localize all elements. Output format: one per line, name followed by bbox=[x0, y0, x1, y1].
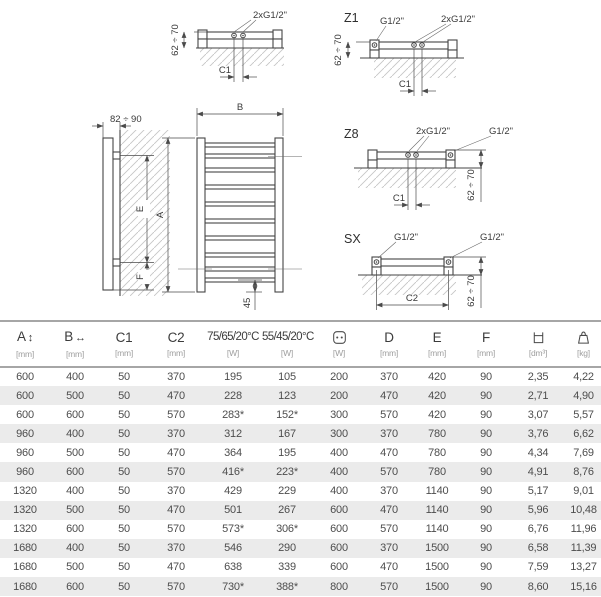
cell: 3,07 bbox=[510, 405, 566, 424]
cell: 50 bbox=[100, 539, 148, 558]
width-dim: B bbox=[237, 102, 243, 113]
cell: 600 bbox=[50, 577, 100, 596]
connection-label: G1/2" bbox=[489, 126, 513, 137]
cell: 470 bbox=[148, 386, 204, 405]
cell: 4,34 bbox=[510, 443, 566, 462]
cell: 200 bbox=[312, 386, 366, 405]
cell: 780 bbox=[412, 443, 462, 462]
c1-dim: C1 bbox=[393, 193, 405, 204]
cell: 50 bbox=[100, 558, 148, 577]
cell: 400 bbox=[50, 367, 100, 386]
cell: 200 bbox=[312, 367, 366, 386]
power-socket-icon bbox=[332, 330, 347, 345]
weight-icon bbox=[576, 330, 591, 345]
cell: 364 bbox=[204, 443, 262, 462]
connection-label: 2xG1/2" bbox=[441, 14, 475, 25]
cell: 152* bbox=[262, 405, 312, 424]
cell: 370 bbox=[366, 539, 412, 558]
header-row: A↕ [mm] B↔ [mm] C1 [mm] C2 [mm] 75/65/20… bbox=[0, 321, 601, 367]
cell: 4,22 bbox=[566, 367, 601, 386]
depth-dim: 82 ÷ 90 bbox=[110, 114, 142, 125]
cell: 600 bbox=[0, 386, 50, 405]
cell: 730* bbox=[204, 577, 262, 596]
cell: 546 bbox=[204, 539, 262, 558]
cell: 470 bbox=[366, 558, 412, 577]
top-view-sx-drawing: SX G1/2" G1/2" C2 62 ÷ 70 bbox=[296, 226, 556, 326]
table-row: 96060050570416*223*400570780904,918,76 bbox=[0, 462, 601, 481]
cell: 4,91 bbox=[510, 462, 566, 481]
cell: 50 bbox=[100, 386, 148, 405]
cell: 5,57 bbox=[566, 405, 601, 424]
cell: 600 bbox=[312, 539, 366, 558]
cell: 13,27 bbox=[566, 558, 601, 577]
cell: 500 bbox=[50, 443, 100, 462]
cell: 50 bbox=[100, 482, 148, 501]
cell: 90 bbox=[462, 539, 510, 558]
connection-label: G1/2" bbox=[380, 16, 404, 27]
cell: 600 bbox=[50, 405, 100, 424]
cell: 90 bbox=[462, 520, 510, 539]
cell: 123 bbox=[262, 386, 312, 405]
cell: 501 bbox=[204, 501, 262, 520]
cell: 470 bbox=[366, 443, 412, 462]
cell: 370 bbox=[366, 482, 412, 501]
cell: 2,35 bbox=[510, 367, 566, 386]
cell: 400 bbox=[50, 482, 100, 501]
cell: 2,71 bbox=[510, 386, 566, 405]
cell: 7,59 bbox=[510, 558, 566, 577]
cell: 6,62 bbox=[566, 424, 601, 443]
c1-dim: C1 bbox=[399, 79, 411, 90]
cell: 223* bbox=[262, 462, 312, 481]
cell: 90 bbox=[462, 482, 510, 501]
cell: 500 bbox=[50, 501, 100, 520]
cell: 195 bbox=[262, 443, 312, 462]
top-view-z8-drawing: Z8 2xG1/2" G1/2" 62 ÷ 70 C1 bbox=[296, 122, 556, 226]
cell: 570 bbox=[148, 577, 204, 596]
cell: 400 bbox=[312, 443, 366, 462]
cell: 50 bbox=[100, 462, 148, 481]
cell: 960 bbox=[0, 424, 50, 443]
cell: 1140 bbox=[412, 501, 462, 520]
cell: 638 bbox=[204, 558, 262, 577]
cell: 50 bbox=[100, 520, 148, 539]
cell: 90 bbox=[462, 501, 510, 520]
cell: 90 bbox=[462, 405, 510, 424]
wall-distance-dim: 62 ÷ 70 bbox=[466, 275, 477, 307]
cell: 11,96 bbox=[566, 520, 601, 539]
cell: 7,69 bbox=[566, 443, 601, 462]
cell: 400 bbox=[50, 424, 100, 443]
cell: 570 bbox=[366, 405, 412, 424]
cell: 306* bbox=[262, 520, 312, 539]
cell: 780 bbox=[412, 462, 462, 481]
water-volume-icon bbox=[531, 330, 546, 345]
height-dim: A bbox=[155, 211, 166, 218]
table-row: 60060050570283*152*300570420903,075,57 bbox=[0, 405, 601, 424]
col-header-volume: [dm³] bbox=[510, 321, 566, 367]
table-row: 132060050570573*306*6005701140906,7611,9… bbox=[0, 520, 601, 539]
cell: 300 bbox=[312, 424, 366, 443]
cell: 570 bbox=[148, 405, 204, 424]
cell: 429 bbox=[204, 482, 262, 501]
cell: 50 bbox=[100, 424, 148, 443]
cell: 1320 bbox=[0, 482, 50, 501]
table-row: 1680400503705462906003701500906,5811,39 bbox=[0, 539, 601, 558]
cell: 420 bbox=[412, 386, 462, 405]
cell: 229 bbox=[262, 482, 312, 501]
cell: 6,58 bbox=[510, 539, 566, 558]
table-row: 60050050470228123200470420902,714,90 bbox=[0, 386, 601, 405]
cell: 90 bbox=[462, 443, 510, 462]
variant-label-z8: Z8 bbox=[344, 127, 359, 141]
cell: 1140 bbox=[412, 520, 462, 539]
cell: 6,76 bbox=[510, 520, 566, 539]
cell: 570 bbox=[366, 520, 412, 539]
cell: 470 bbox=[366, 501, 412, 520]
cell: 195 bbox=[204, 367, 262, 386]
cell: 1680 bbox=[0, 558, 50, 577]
connection-label: 2xG1/2" bbox=[253, 10, 287, 21]
cell: 470 bbox=[366, 386, 412, 405]
radiator-spec-sheet: 2xG1/2" 62 ÷ 70 C1 Z1 G1/2" 2xG1/2" 62 ÷… bbox=[0, 0, 601, 597]
cell: 1680 bbox=[0, 577, 50, 596]
cell: 600 bbox=[312, 501, 366, 520]
cell: 416* bbox=[204, 462, 262, 481]
cell: 1500 bbox=[412, 577, 462, 596]
cell: 4,90 bbox=[566, 386, 601, 405]
table-row: 168060050570730*388*8005701500908,6015,1… bbox=[0, 577, 601, 596]
e-dim: E bbox=[135, 206, 146, 212]
cell: 90 bbox=[462, 424, 510, 443]
cell: 90 bbox=[462, 386, 510, 405]
wall-distance-dim: 62 ÷ 70 bbox=[333, 34, 344, 66]
cell: 500 bbox=[50, 386, 100, 405]
cell: 780 bbox=[412, 424, 462, 443]
cell: 8,60 bbox=[510, 577, 566, 596]
f-dim: F bbox=[135, 274, 146, 280]
top-view-z1-drawing: Z1 G1/2" 2xG1/2" 62 ÷ 70 C1 bbox=[296, 4, 546, 112]
cell: 500 bbox=[50, 558, 100, 577]
cell: 90 bbox=[462, 462, 510, 481]
cell: 283* bbox=[204, 405, 262, 424]
col-header-weight: [kg] bbox=[566, 321, 601, 367]
col-header-f: F [mm] bbox=[462, 321, 510, 367]
table-row: 60040050370195105200370420902,354,22 bbox=[0, 367, 601, 386]
wall-distance-dim: 62 ÷ 70 bbox=[170, 24, 181, 56]
cell: 370 bbox=[366, 367, 412, 386]
table-row: 1320400503704292294003701140905,179,01 bbox=[0, 482, 601, 501]
cell: 573* bbox=[204, 520, 262, 539]
variant-label-z1: Z1 bbox=[344, 11, 359, 25]
cell: 400 bbox=[312, 482, 366, 501]
cell: 105 bbox=[262, 367, 312, 386]
connection-label: G1/2" bbox=[480, 232, 504, 243]
cell: 1140 bbox=[412, 482, 462, 501]
col-header-c2: C2 [mm] bbox=[148, 321, 204, 367]
cell: 5,17 bbox=[510, 482, 566, 501]
cell: 370 bbox=[148, 424, 204, 443]
connection-label: 2xG1/2" bbox=[416, 126, 450, 137]
col-header-output-75: 75/65/20°C [W] bbox=[204, 321, 262, 367]
cell: 50 bbox=[100, 367, 148, 386]
col-header-width: B↔ [mm] bbox=[50, 321, 100, 367]
cell: 600 bbox=[0, 367, 50, 386]
c1-dim: C1 bbox=[219, 65, 231, 76]
cell: 570 bbox=[148, 462, 204, 481]
variant-label-sx: SX bbox=[344, 232, 361, 246]
table-row: 1680500504706383396004701500907,5913,27 bbox=[0, 558, 601, 577]
up-down-arrow-icon: ↕ bbox=[28, 332, 33, 344]
col-header-electric: [W] bbox=[312, 321, 366, 367]
cell: 228 bbox=[204, 386, 262, 405]
cell: 960 bbox=[0, 462, 50, 481]
cell: 1320 bbox=[0, 520, 50, 539]
cell: 50 bbox=[100, 405, 148, 424]
cell: 600 bbox=[312, 558, 366, 577]
cell: 90 bbox=[462, 577, 510, 596]
cell: 50 bbox=[100, 443, 148, 462]
connection-label: G1/2" bbox=[394, 232, 418, 243]
cell: 1500 bbox=[412, 539, 462, 558]
cell: 50 bbox=[100, 501, 148, 520]
cell: 370 bbox=[366, 424, 412, 443]
cell: 9,01 bbox=[566, 482, 601, 501]
cell: 90 bbox=[462, 558, 510, 577]
cell: 600 bbox=[312, 520, 366, 539]
bottom-offset-dim: 45 bbox=[242, 298, 253, 309]
cell: 370 bbox=[148, 482, 204, 501]
cell: 267 bbox=[262, 501, 312, 520]
cell: 312 bbox=[204, 424, 262, 443]
cell: 1500 bbox=[412, 558, 462, 577]
cell: 90 bbox=[462, 367, 510, 386]
cell: 420 bbox=[412, 405, 462, 424]
cell: 470 bbox=[148, 443, 204, 462]
table-row: 96040050370312167300370780903,766,62 bbox=[0, 424, 601, 443]
cell: 1680 bbox=[0, 539, 50, 558]
cell: 400 bbox=[312, 462, 366, 481]
col-header-c1: C1 [mm] bbox=[100, 321, 148, 367]
front-view-drawing: B A 45 bbox=[150, 98, 320, 330]
left-right-arrow-icon: ↔ bbox=[75, 332, 86, 344]
spec-table: A↕ [mm] B↔ [mm] C1 [mm] C2 [mm] 75/65/20… bbox=[0, 320, 601, 596]
cell: 470 bbox=[148, 501, 204, 520]
cell: 15,16 bbox=[566, 577, 601, 596]
cell: 600 bbox=[50, 462, 100, 481]
cell: 10,48 bbox=[566, 501, 601, 520]
col-header-d: D [mm] bbox=[366, 321, 412, 367]
cell: 8,76 bbox=[566, 462, 601, 481]
cell: 5,96 bbox=[510, 501, 566, 520]
cell: 470 bbox=[148, 558, 204, 577]
cell: 370 bbox=[148, 367, 204, 386]
cell: 400 bbox=[50, 539, 100, 558]
cell: 300 bbox=[312, 405, 366, 424]
cell: 570 bbox=[366, 577, 412, 596]
c2-dim: C2 bbox=[406, 293, 418, 304]
col-header-e: E [mm] bbox=[412, 321, 462, 367]
cell: 339 bbox=[262, 558, 312, 577]
cell: 600 bbox=[0, 405, 50, 424]
cell: 370 bbox=[148, 539, 204, 558]
col-header-height: A↕ [mm] bbox=[0, 321, 50, 367]
cell: 3,76 bbox=[510, 424, 566, 443]
cell: 1320 bbox=[0, 501, 50, 520]
cell: 11,39 bbox=[566, 539, 601, 558]
cell: 600 bbox=[50, 520, 100, 539]
cell: 50 bbox=[100, 577, 148, 596]
col-header-output-55: 55/45/20°C [W] bbox=[262, 321, 312, 367]
wall-distance-dim: 62 ÷ 70 bbox=[466, 169, 477, 201]
cell: 388* bbox=[262, 577, 312, 596]
cell: 420 bbox=[412, 367, 462, 386]
cell: 570 bbox=[366, 462, 412, 481]
table-row: 1320500504705012676004701140905,9610,48 bbox=[0, 501, 601, 520]
cell: 800 bbox=[312, 577, 366, 596]
cell: 960 bbox=[0, 443, 50, 462]
table-row: 96050050470364195400470780904,347,69 bbox=[0, 443, 601, 462]
cell: 570 bbox=[148, 520, 204, 539]
cell: 290 bbox=[262, 539, 312, 558]
cell: 167 bbox=[262, 424, 312, 443]
